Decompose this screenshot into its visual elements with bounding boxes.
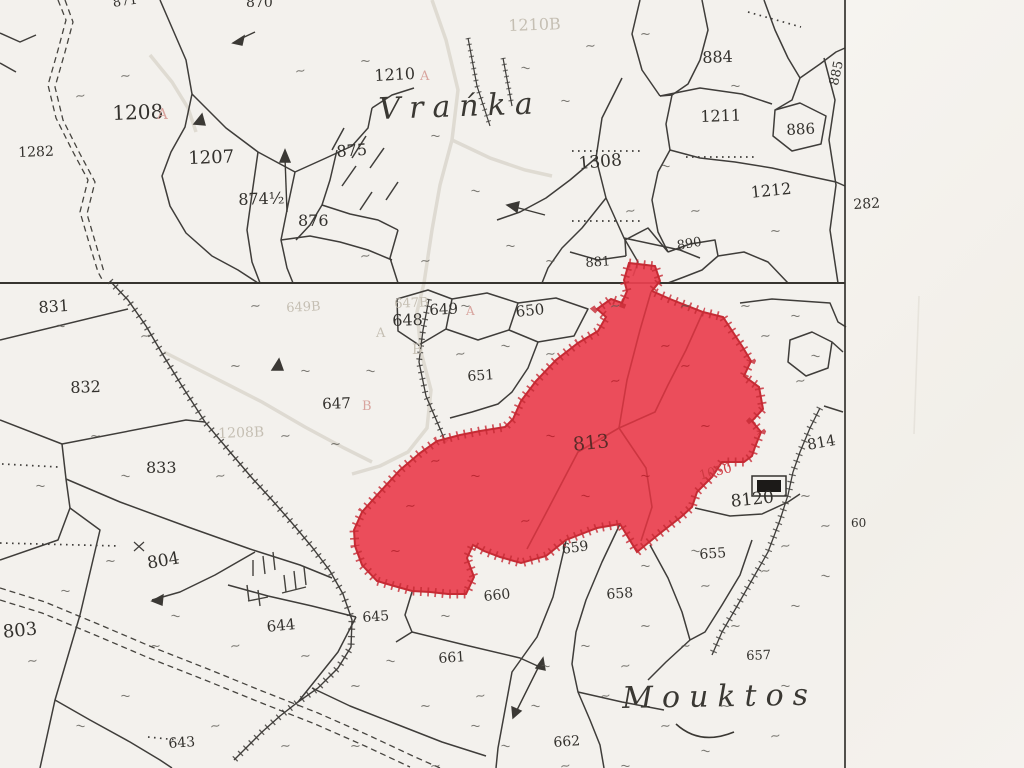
map-linework xyxy=(0,0,1024,768)
x-mark xyxy=(134,542,144,551)
building-symbol xyxy=(752,476,786,496)
trail-layer xyxy=(0,0,440,768)
placename-flourish xyxy=(676,724,734,737)
cadastral-map: ~~~~~~~~~~~~~~~~~~~~~~~~~~~~~~~~~~~~~~~~… xyxy=(0,0,1024,768)
